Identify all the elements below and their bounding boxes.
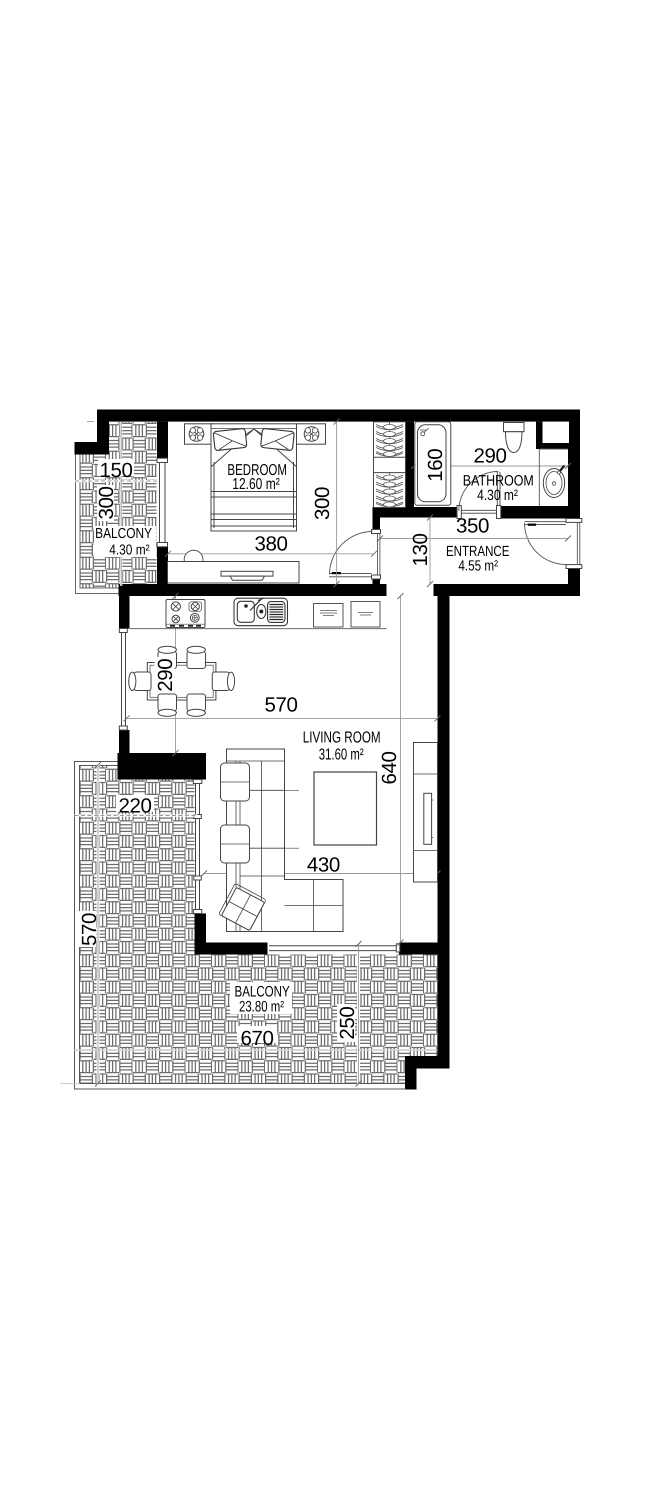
svg-text:LIVING ROOM: LIVING ROOM [303, 730, 381, 747]
svg-text:250: 250 [336, 1007, 359, 1040]
svg-text:150: 150 [99, 459, 132, 482]
svg-text:220: 220 [118, 795, 151, 818]
svg-text:160: 160 [424, 449, 447, 482]
svg-text:430: 430 [307, 853, 340, 876]
svg-text:BALCONY: BALCONY [95, 526, 152, 542]
svg-text:12.60 m²: 12.60 m² [232, 476, 279, 493]
svg-text:570: 570 [264, 694, 297, 717]
svg-text:300: 300 [95, 486, 118, 519]
svg-text:670: 670 [240, 1027, 273, 1050]
svg-text:640: 640 [378, 751, 401, 784]
svg-text:350: 350 [456, 514, 489, 537]
svg-text:23.80 m²: 23.80 m² [239, 999, 284, 1016]
svg-text:31.60 m²: 31.60 m² [319, 747, 364, 764]
svg-text:4.30 m²: 4.30 m² [477, 487, 518, 504]
svg-text:290: 290 [154, 659, 177, 692]
svg-text:300: 300 [311, 487, 334, 520]
svg-text:290: 290 [473, 445, 506, 468]
svg-text:4.30 m²: 4.30 m² [109, 543, 149, 559]
svg-text:570: 570 [78, 913, 101, 946]
svg-text:380: 380 [254, 533, 287, 556]
svg-text:4.55 m²: 4.55 m² [458, 559, 498, 575]
svg-text:130: 130 [409, 533, 432, 566]
